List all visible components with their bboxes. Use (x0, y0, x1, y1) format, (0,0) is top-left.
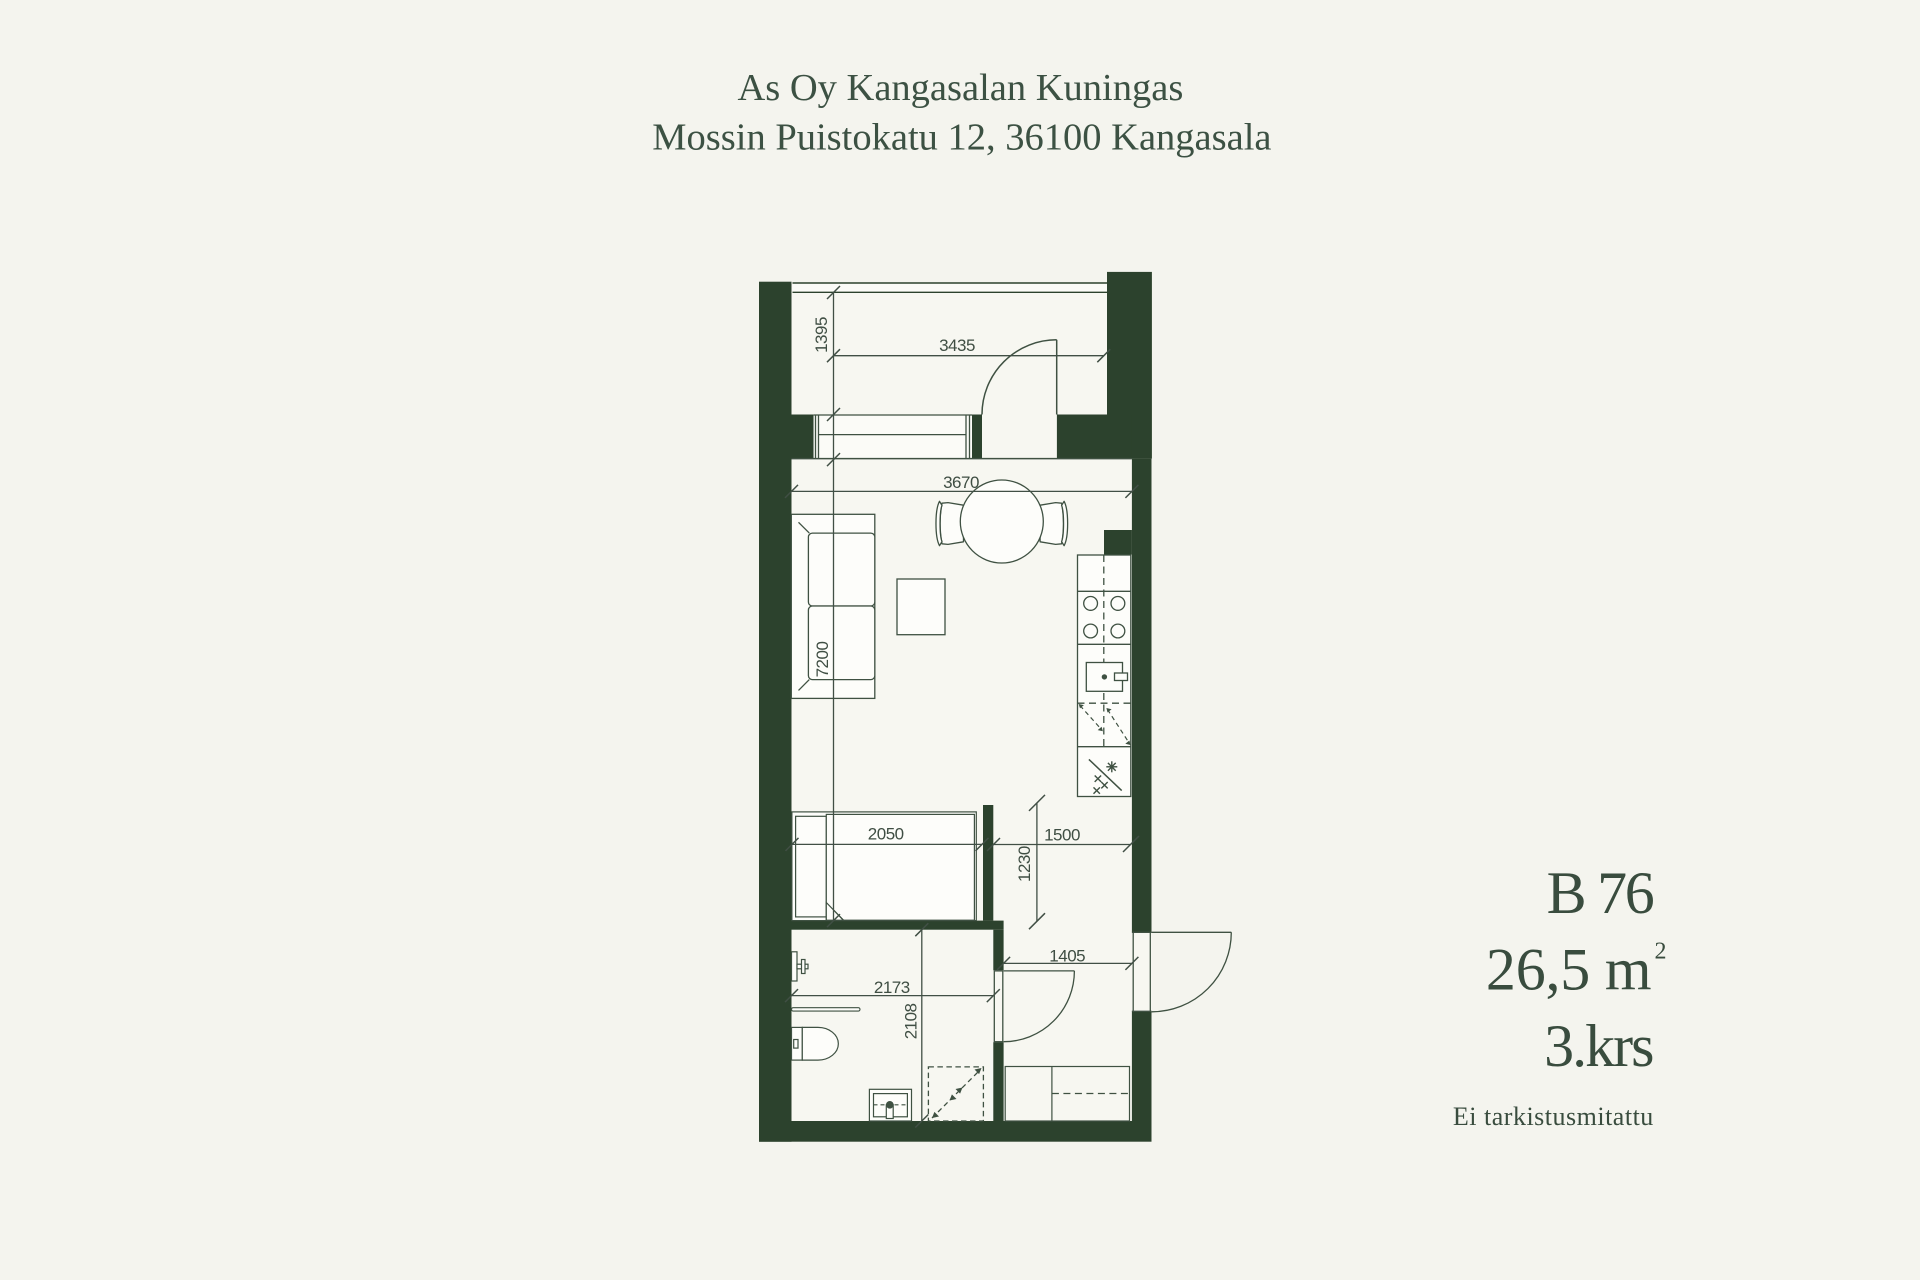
svg-text:As Oy Kangasalan Kuningas: As Oy Kangasalan Kuningas (737, 67, 1183, 109)
svg-text:26,5 m: 26,5 m (1486, 936, 1651, 1002)
svg-text:3.krs: 3.krs (1544, 1013, 1653, 1079)
svg-text:Ei tarkistusmitattu: Ei tarkistusmitattu (1453, 1102, 1654, 1131)
svg-text:7200: 7200 (813, 642, 832, 678)
svg-text:1405: 1405 (1049, 946, 1085, 965)
svg-text:3670: 3670 (943, 473, 979, 492)
svg-text:2: 2 (1655, 938, 1667, 964)
svg-text:3435: 3435 (939, 336, 975, 355)
svg-text:B 76: B 76 (1547, 860, 1654, 926)
svg-text:2173: 2173 (874, 978, 910, 997)
svg-text:1395: 1395 (812, 317, 831, 353)
svg-text:2108: 2108 (902, 1003, 921, 1039)
svg-text:2050: 2050 (868, 825, 904, 844)
svg-text:1500: 1500 (1044, 825, 1080, 844)
svg-text:1230: 1230 (1015, 846, 1034, 882)
svg-text:Mossin Puistokatu 12, 36100 Ka: Mossin Puistokatu 12, 36100 Kangasala (652, 116, 1271, 158)
